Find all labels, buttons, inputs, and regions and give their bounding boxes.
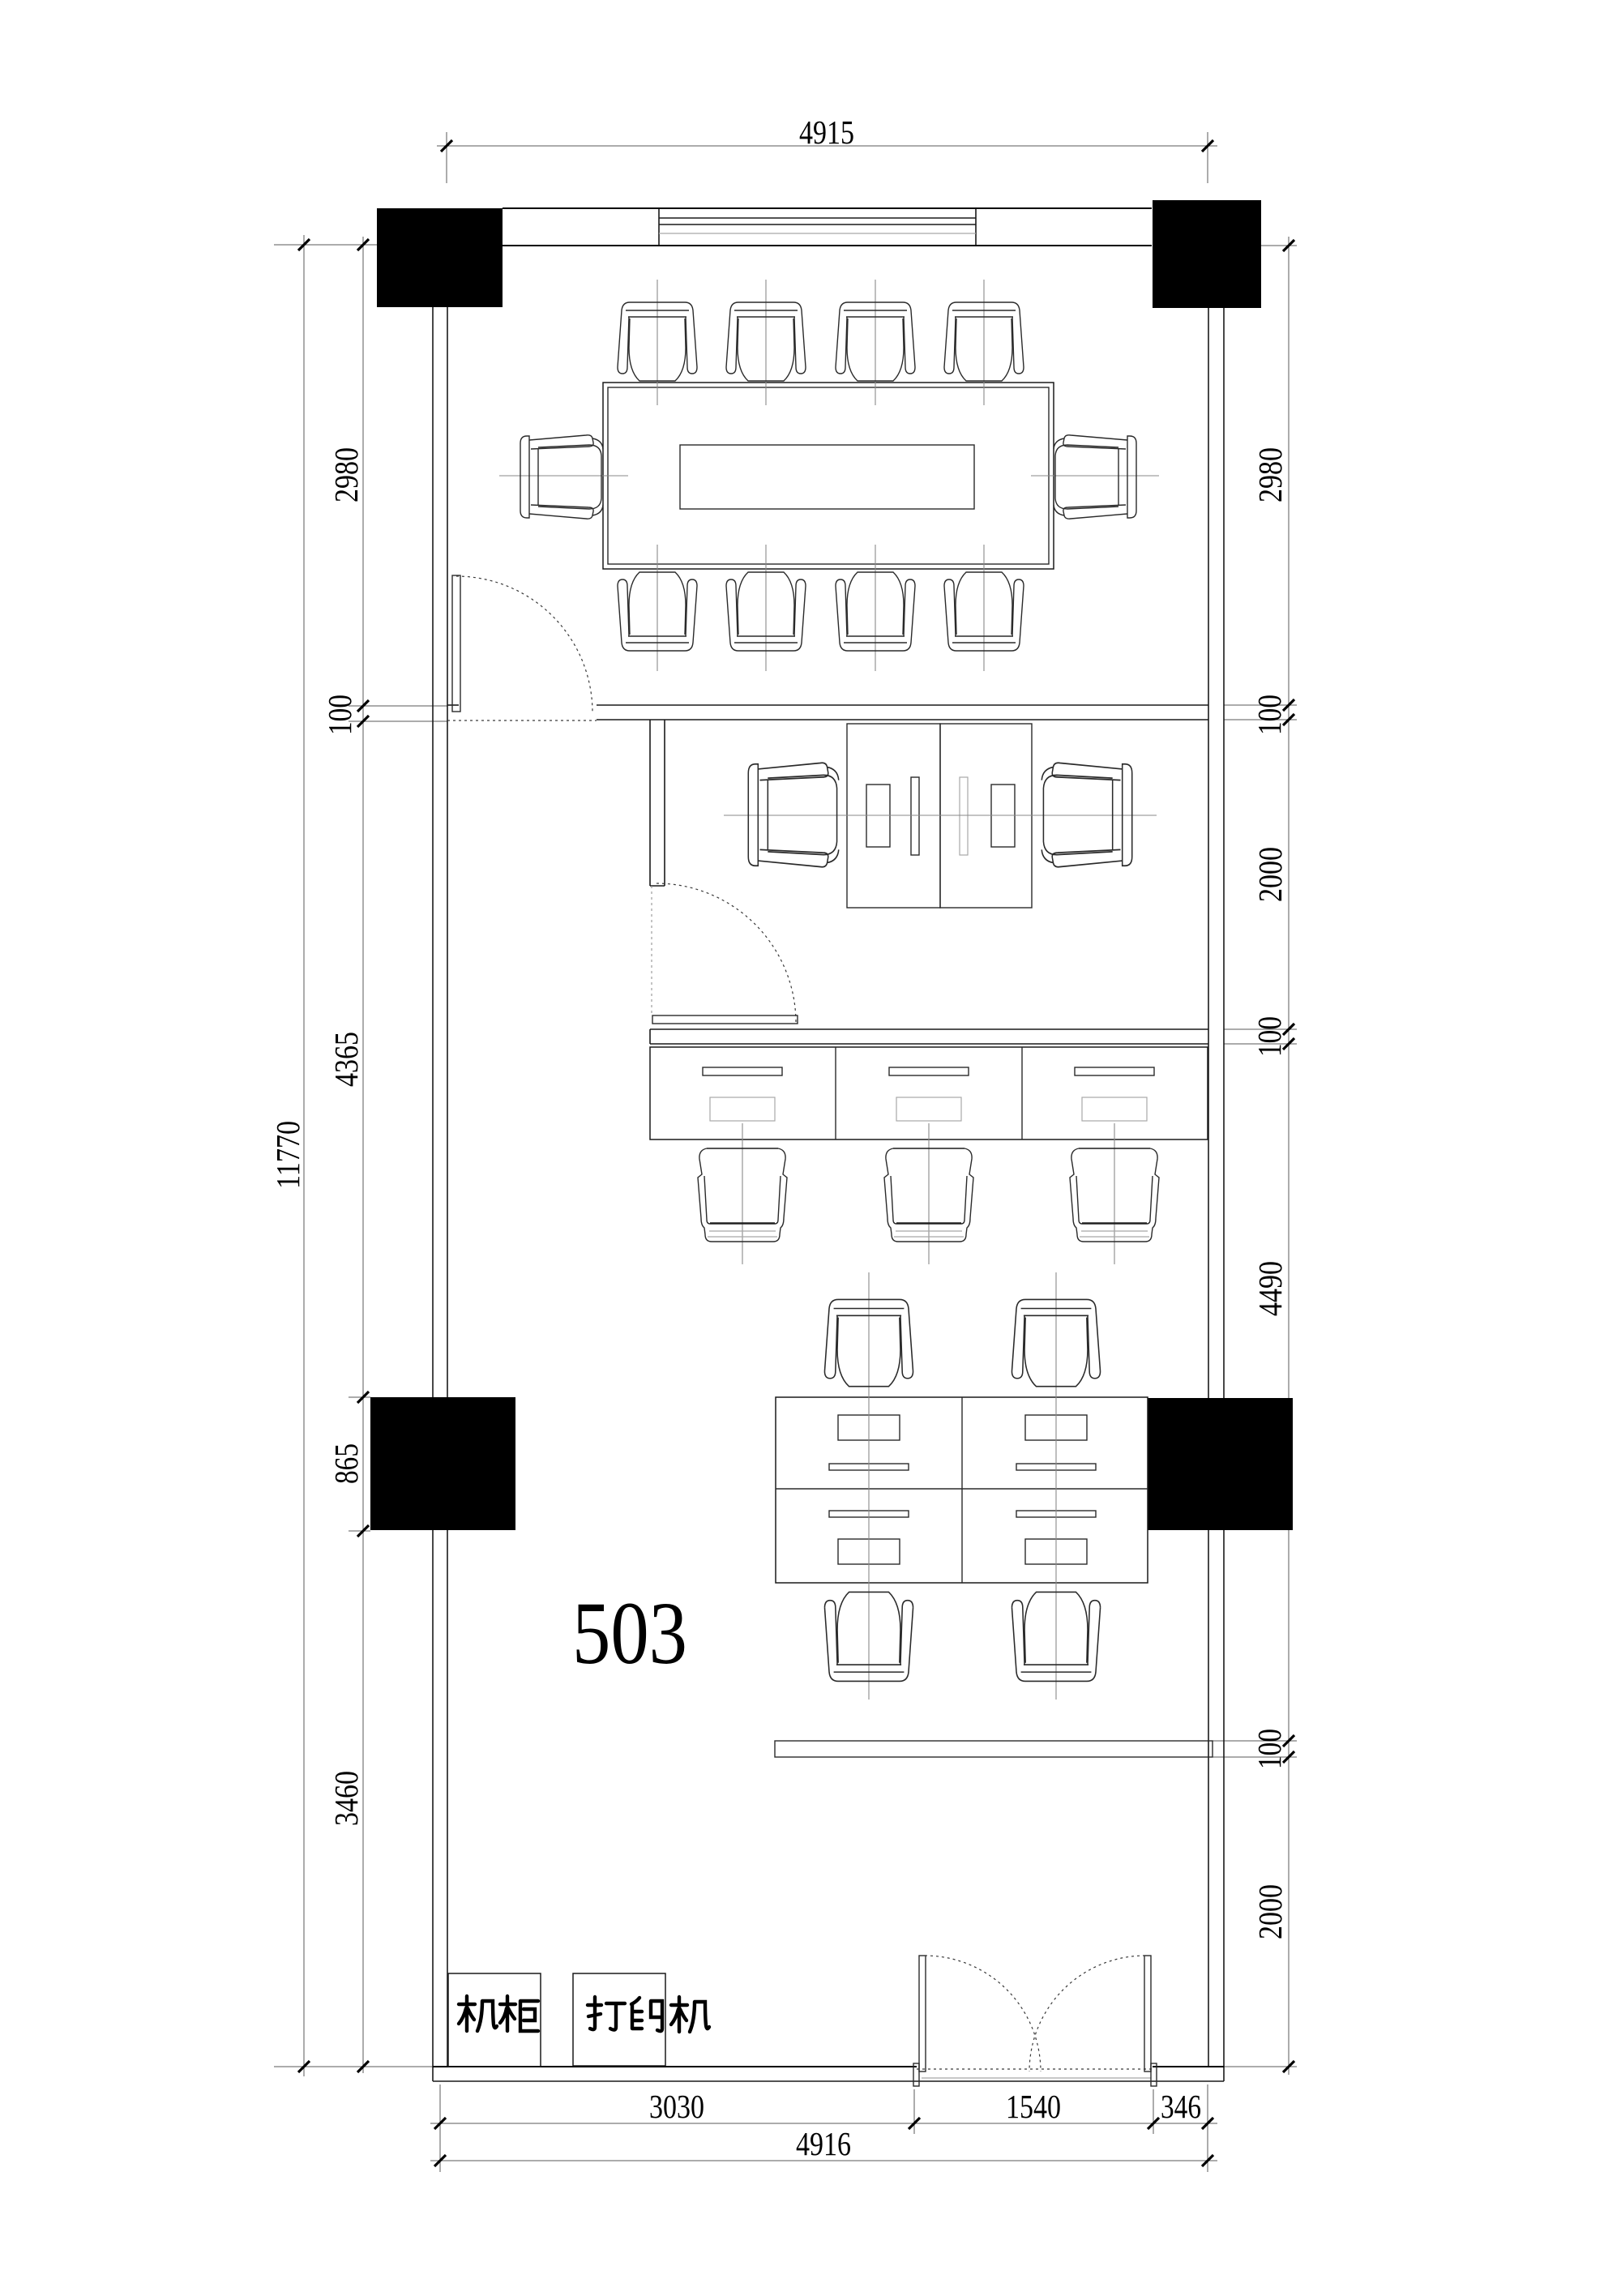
svg-text:503: 503 bbox=[572, 1584, 687, 1682]
svg-text:2000: 2000 bbox=[1251, 1884, 1289, 1939]
svg-text:4490: 4490 bbox=[1251, 1261, 1289, 1316]
svg-text:100: 100 bbox=[1251, 1016, 1288, 1057]
svg-text:865: 865 bbox=[327, 1443, 365, 1484]
svg-text:2000: 2000 bbox=[1251, 847, 1289, 902]
svg-text:1540: 1540 bbox=[1006, 2088, 1061, 2125]
svg-text:4365: 4365 bbox=[327, 1032, 365, 1087]
svg-text:3460: 3460 bbox=[327, 1771, 365, 1826]
svg-text:2980: 2980 bbox=[327, 447, 365, 502]
svg-text:4915: 4915 bbox=[799, 113, 854, 151]
svg-text:346: 346 bbox=[1161, 2088, 1201, 2125]
svg-text:4916: 4916 bbox=[796, 2125, 851, 2162]
svg-text:3030: 3030 bbox=[649, 2088, 704, 2125]
svg-text:100: 100 bbox=[1251, 1729, 1288, 1769]
svg-text:2980: 2980 bbox=[1251, 447, 1289, 502]
svg-text:11770: 11770 bbox=[269, 1121, 306, 1189]
svg-text:100: 100 bbox=[1251, 695, 1288, 735]
svg-text:100: 100 bbox=[321, 695, 358, 735]
